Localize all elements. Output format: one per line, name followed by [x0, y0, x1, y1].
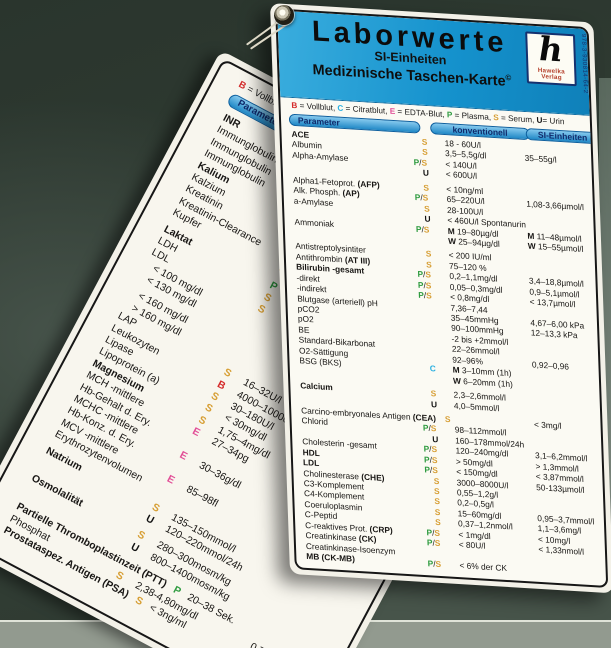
isbn-text: 978-3-930814-64-2 [580, 34, 589, 94]
publisher-logo-letter: h [527, 31, 574, 68]
lab-values-table: ACES18 - 60U/lAlbuminS3,5–5,5g/dl35–55g/… [281, 128, 606, 579]
specimen-code: S [422, 137, 428, 148]
specimen-key-U: U [536, 116, 542, 125]
column-header-si: SI-Einheiten [526, 128, 600, 144]
specimen-key-E: E [390, 107, 396, 116]
copyright-mark: © [505, 73, 511, 82]
conventional-value: < 600U/l [446, 169, 478, 181]
specimen-code: S [430, 388, 436, 399]
specimen-code: P/S [427, 558, 441, 569]
specimen-code: S [435, 517, 441, 528]
parameter-name: BE [298, 324, 309, 335]
specimen-code: U [423, 168, 429, 179]
specimen-key-C: C [337, 104, 343, 113]
specimen-code: U [128, 541, 141, 556]
specimen-code: S [133, 595, 144, 608]
specimen-code: S [426, 259, 432, 270]
specimen-key-B: B [237, 79, 248, 92]
specimen-code: U [432, 434, 438, 445]
specimen-code: S [434, 486, 440, 497]
specimen-code: S [435, 507, 441, 518]
parameter-name: MB (CK-MB) [306, 551, 355, 564]
specimen-key-B: B [291, 101, 297, 110]
specimen-code: U [431, 399, 437, 410]
specimen-code: S [434, 476, 440, 487]
metal-grommet [274, 5, 294, 25]
specimen-code: S [426, 249, 432, 260]
specimen-code: P [171, 585, 182, 598]
front-card: Laborwerte SI-Einheiten Medizinische Tas… [270, 3, 611, 593]
product-photo-background: B = Vollblut, C = Citratblut, E = EDTA-B… [0, 0, 611, 648]
specimen-code: S [445, 414, 451, 424]
specimen-code: S [424, 203, 430, 214]
specimen-code: S [422, 147, 428, 158]
specimen-code: U [143, 513, 156, 528]
specimen-code: S [434, 496, 440, 507]
card-frame: Laborwerte SI-Einheiten Medizinische Tas… [275, 8, 608, 588]
publisher-logo: h Hawelka Verlag [525, 31, 577, 86]
specimen-code: C [430, 363, 436, 374]
specimen-code: S [423, 182, 429, 193]
card-header: Laborwerte SI-Einheiten Medizinische Tas… [277, 10, 589, 115]
publisher-name: Hawelka Verlag [528, 67, 574, 83]
specimen-key-P: P [447, 110, 453, 119]
conventional-value: < 6% der CK [459, 560, 507, 573]
publisher-name-line2: Verlag [529, 74, 575, 83]
specimen-code: U [424, 214, 430, 225]
specimen-key-S: S [493, 113, 499, 122]
